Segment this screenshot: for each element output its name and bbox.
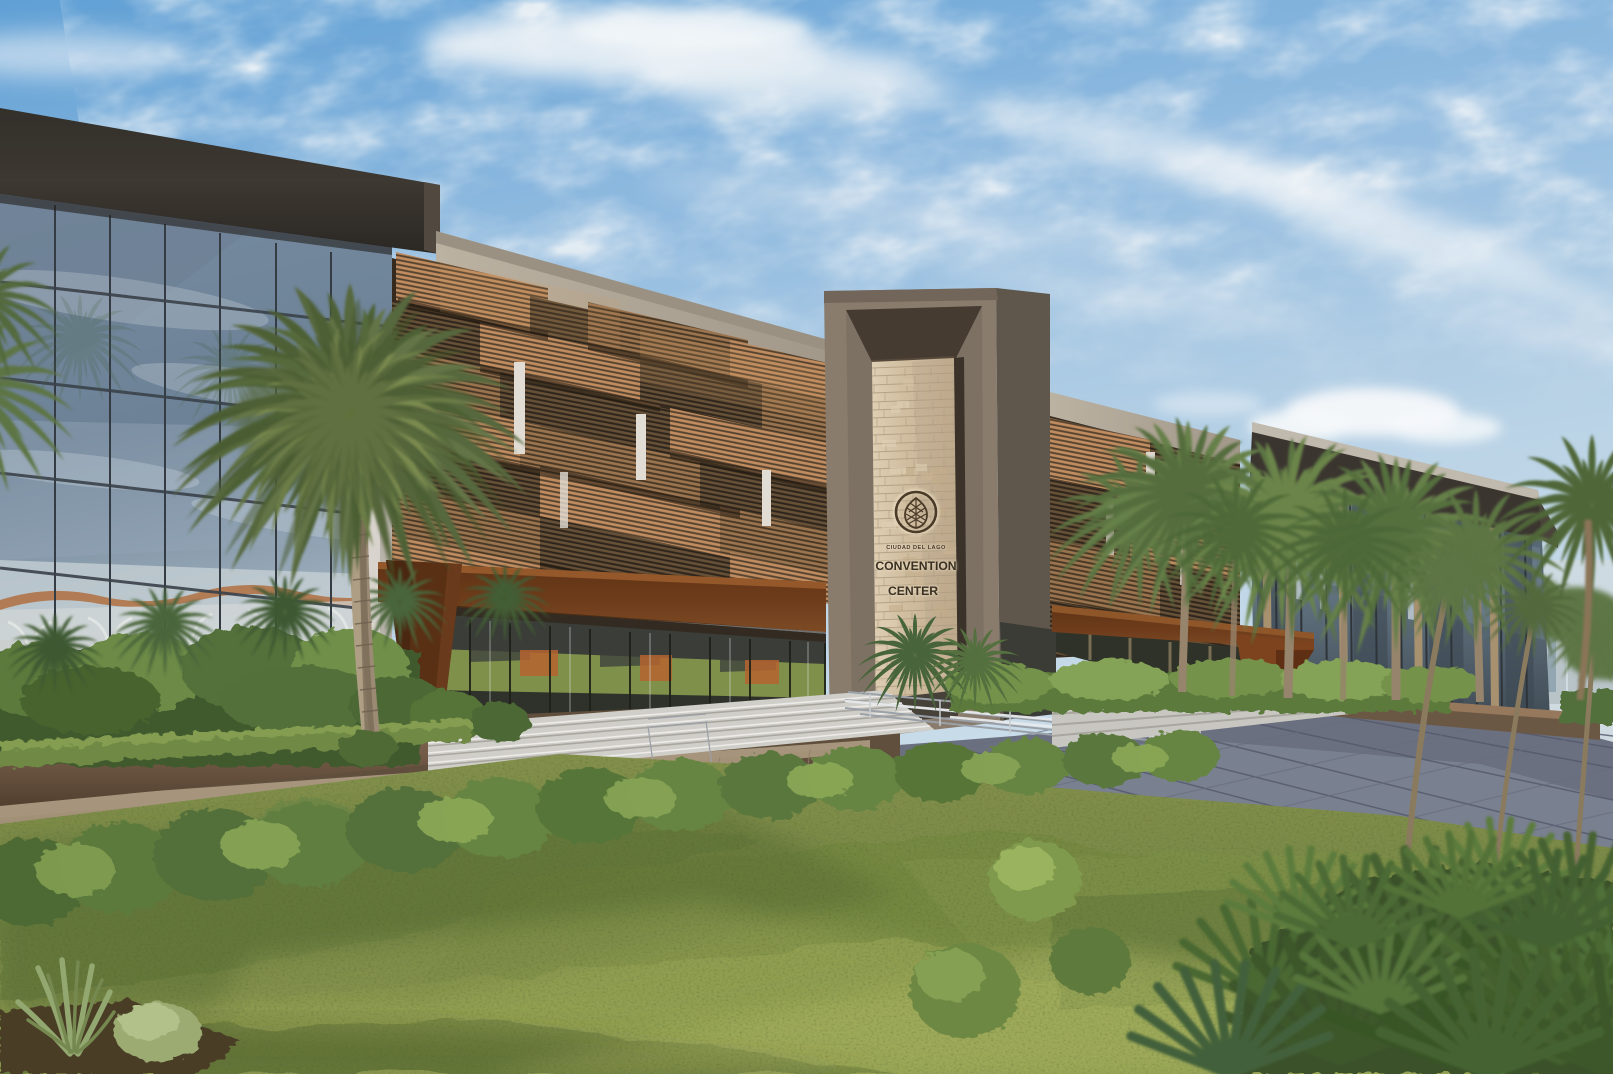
svg-text:CONVENTION: CONVENTION	[875, 559, 956, 573]
svg-text:CIUDAD DEL LAGO: CIUDAD DEL LAGO	[886, 545, 946, 551]
svg-text:CENTER: CENTER	[888, 584, 938, 598]
